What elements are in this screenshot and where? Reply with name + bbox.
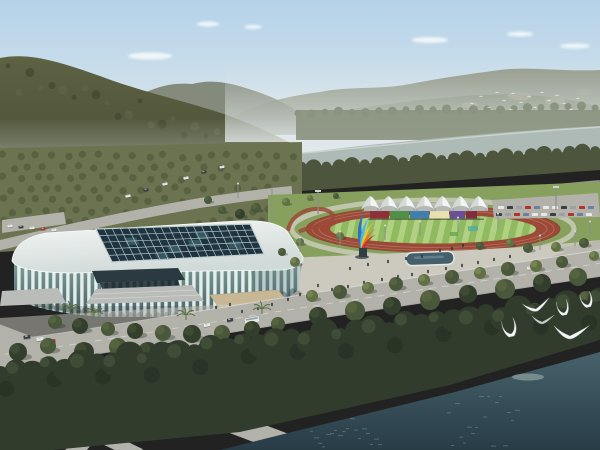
orchard-tree: [11, 165, 18, 172]
bank-tree: [498, 148, 514, 164]
orchard-tree: [105, 185, 112, 192]
bank-tree: [306, 159, 322, 175]
canopy-highlight: [137, 353, 147, 363]
bank-tree: [360, 159, 370, 169]
tree-highlight: [524, 244, 530, 250]
distant-tree: [376, 107, 383, 114]
tree-highlight: [334, 286, 342, 294]
orchard-tree: [129, 152, 136, 159]
bank-tree: [371, 157, 384, 170]
person: [387, 260, 389, 263]
tree-highlight: [557, 257, 564, 264]
cloud: [560, 44, 590, 49]
orchard-tree: [49, 196, 56, 203]
tree-highlight: [272, 318, 280, 326]
person: [299, 293, 301, 296]
tree-highlight: [390, 278, 398, 286]
orchard-tree: [122, 165, 129, 172]
orchard-tree: [80, 195, 87, 202]
parked-car: [586, 213, 592, 216]
tree-highlight: [346, 302, 357, 313]
cloud: [128, 53, 172, 60]
light-pole-head: [339, 231, 341, 233]
parked-car: [543, 206, 549, 209]
canopy-highlight: [264, 332, 278, 346]
orchard-tree: [171, 183, 178, 190]
distant-tree: [295, 110, 302, 117]
orchard-tree: [113, 152, 120, 159]
bank-tree: [536, 146, 552, 162]
orchard-tree: [91, 187, 98, 194]
forest-texture: [92, 90, 101, 99]
orchard-tree: [47, 174, 54, 181]
forest-texture: [82, 84, 89, 91]
orchard-tree: [151, 163, 158, 170]
tree-highlight: [102, 323, 110, 331]
orchard-tree: [247, 164, 254, 171]
bank-tree: [333, 159, 346, 172]
tree-highlight: [421, 291, 432, 302]
orchard-tree: [54, 185, 61, 192]
floodlight-head: [553, 186, 559, 188]
light-pole-head: [299, 237, 301, 239]
bank-tree: [552, 148, 562, 158]
orchard-tree: [120, 187, 127, 194]
parked-car: [525, 206, 531, 209]
parked-car: [577, 213, 583, 216]
parked-car: [579, 206, 585, 209]
orchard-tree: [96, 195, 103, 202]
parked-car: [505, 213, 511, 216]
person: [462, 244, 464, 247]
person: [257, 307, 259, 310]
orchard-tree: [67, 175, 74, 182]
canopy-highlight: [201, 337, 213, 349]
orchard-tree: [209, 173, 216, 180]
orchard-tree: [31, 151, 38, 158]
tree-highlight: [460, 286, 470, 296]
orchard-tree: [144, 198, 151, 205]
orchard-tree: [167, 161, 174, 168]
orchard-tree: [137, 187, 144, 194]
person: [493, 258, 495, 261]
bank-tree: [421, 153, 437, 169]
distant-tree: [592, 104, 599, 111]
color-panel: [466, 211, 477, 219]
tree-highlight: [184, 326, 194, 336]
bank-tree: [525, 148, 538, 161]
orchard-tree: [273, 152, 280, 159]
color-panel: [370, 211, 389, 219]
light-pole-head: [497, 213, 499, 215]
tree-highlight: [252, 204, 258, 210]
orchard-tree: [72, 206, 79, 213]
distant-tree: [349, 109, 356, 116]
person: [405, 257, 407, 260]
orchard-tree: [27, 185, 34, 192]
tree-highlight: [580, 239, 586, 245]
orchard-tree: [233, 163, 240, 170]
orchard-tree: [32, 195, 39, 202]
architectural-rendering: [0, 0, 600, 450]
orchard-tree: [184, 187, 191, 194]
bank-tree: [513, 151, 523, 161]
orchard-tree: [290, 175, 297, 182]
tree-highlight: [506, 239, 510, 243]
distant-tree: [511, 105, 518, 112]
canopy-tree-dark: [192, 359, 208, 375]
grandstand-panels: [370, 211, 477, 219]
person: [427, 270, 429, 273]
tree-highlight: [41, 339, 50, 348]
orchard-tree: [111, 174, 118, 181]
orchard-tree: [103, 207, 110, 214]
bank-tree: [437, 155, 447, 165]
person: [461, 264, 463, 267]
orchard-tree: [9, 209, 16, 216]
distant-tree: [538, 104, 545, 111]
tree-highlight: [475, 268, 482, 275]
car-body: [7, 225, 12, 228]
orchard-tree: [241, 174, 248, 181]
bank-tree: [475, 153, 485, 163]
parked-car: [516, 206, 522, 209]
parked-car: [568, 213, 574, 216]
bank-tree: [398, 157, 408, 167]
canopy-highlight: [492, 310, 504, 322]
tree-highlight: [291, 258, 297, 264]
parked-car: [559, 213, 565, 216]
bank-tree: [344, 157, 360, 173]
orchard-tree: [59, 163, 66, 170]
forest-texture: [49, 82, 56, 89]
parked-car: [507, 206, 513, 209]
distant-tree: [415, 105, 424, 114]
distant-tree: [334, 107, 343, 116]
light-pole-head: [574, 231, 576, 233]
canopy-highlight: [395, 313, 407, 325]
canopy-tree-dark: [581, 315, 597, 331]
light-pole-head: [589, 221, 591, 223]
sculpture-pedestal: [359, 248, 367, 257]
canopy-highlight: [331, 329, 341, 339]
orchard-tree: [7, 187, 14, 194]
orchard-tree: [208, 151, 215, 158]
person: [229, 303, 231, 306]
parked-car: [514, 213, 520, 216]
tree-highlight: [570, 269, 580, 279]
light-pole-head: [384, 225, 386, 227]
orchard-tree: [255, 151, 262, 158]
parked-car: [588, 206, 594, 209]
orchard-tree: [147, 154, 154, 161]
orchard-tree: [90, 165, 97, 172]
distant-tree: [457, 107, 464, 114]
floodlight-head: [315, 190, 321, 192]
light-pole-head: [457, 217, 459, 219]
car-body: [29, 227, 34, 230]
tree-highlight: [446, 271, 454, 279]
canopy-highlight: [40, 357, 50, 367]
tree-highlight: [476, 242, 480, 246]
car-body: [40, 228, 45, 231]
orchard-tree: [200, 163, 207, 170]
tree-highlight: [282, 198, 286, 202]
tree-highlight: [215, 326, 224, 335]
orchard-tree: [131, 196, 138, 203]
orchard-tree: [183, 165, 190, 172]
forest-texture: [26, 68, 35, 77]
orchard-tree: [0, 195, 7, 202]
orchard-tree: [18, 175, 25, 182]
tree-highlight: [236, 210, 242, 216]
parked-car: [534, 206, 540, 209]
color-panel: [390, 211, 409, 219]
orchard-tree: [99, 173, 106, 180]
water-reflection: [512, 374, 544, 381]
bank-tree: [563, 146, 576, 159]
orchard-tree: [290, 153, 297, 160]
person: [215, 306, 217, 309]
orchard-tree: [147, 176, 154, 183]
canopy-tree-dark: [387, 337, 403, 353]
parked-car: [523, 213, 529, 216]
bank-tree: [486, 151, 499, 164]
distant-tree: [469, 105, 478, 114]
bank-tree: [448, 153, 461, 166]
distant-tree: [550, 102, 559, 111]
orchard-tree: [74, 184, 81, 191]
tree-highlight: [218, 206, 222, 210]
car-body: [51, 229, 56, 232]
tree-highlight: [333, 193, 336, 196]
orchard-tree: [79, 151, 86, 158]
tree-highlight: [49, 316, 57, 324]
canopy-highlight: [298, 333, 310, 345]
person: [445, 267, 447, 270]
orchard-tree: [114, 196, 121, 203]
tree-highlight: [552, 243, 558, 249]
orchard-tree: [79, 173, 86, 180]
bank-tree: [321, 162, 331, 172]
parked-car: [552, 206, 558, 209]
light-pole-head: [539, 235, 541, 237]
orchard-tree: [24, 163, 31, 170]
person: [271, 303, 273, 306]
light-pole-head: [419, 221, 421, 223]
person: [317, 284, 319, 287]
forest-texture: [138, 98, 143, 103]
orchard-tree: [39, 163, 46, 170]
person: [241, 310, 243, 313]
tree-highlight: [580, 292, 588, 300]
person: [421, 255, 423, 258]
tree-highlight: [10, 344, 20, 354]
cloud: [507, 32, 533, 37]
tree-highlight: [245, 322, 254, 331]
orchard-tree: [75, 162, 82, 169]
forest-texture: [39, 85, 44, 90]
orchard-tree: [159, 151, 166, 158]
tree-highlight: [590, 252, 596, 258]
orchard-tree: [18, 197, 25, 204]
parked-car: [532, 213, 538, 216]
person: [381, 278, 383, 281]
parked-car: [498, 206, 504, 209]
orchard-tree: [195, 176, 202, 183]
color-panel: [410, 211, 429, 219]
tree-highlight: [363, 283, 370, 290]
distant-tree: [307, 109, 316, 118]
orchard-tree: [200, 185, 207, 192]
distant-tree: [430, 106, 437, 113]
canopy-highlight: [167, 344, 181, 358]
person: [287, 298, 289, 301]
forest-texture: [105, 100, 110, 105]
canopy-tree-dark: [144, 367, 160, 383]
orchard-tree: [218, 187, 225, 194]
distant-tree: [361, 108, 370, 117]
tree-highlight: [419, 275, 426, 282]
field-marking: [468, 226, 478, 232]
distant-tree: [484, 105, 491, 112]
bank-tree: [590, 146, 600, 156]
orchard-tree: [263, 161, 270, 168]
distant-tree: [442, 104, 451, 113]
distant-tree: [577, 102, 586, 111]
forest-texture: [16, 89, 23, 96]
distant-tree: [403, 106, 410, 113]
person: [411, 273, 413, 276]
person: [349, 267, 351, 270]
light-pole-head: [237, 183, 239, 185]
orchard-tree: [35, 173, 42, 180]
bank-tree: [574, 144, 590, 160]
forest-texture: [59, 86, 68, 95]
distant-tree: [496, 106, 505, 115]
orchard-tree: [161, 173, 168, 180]
parked-car: [561, 206, 567, 209]
orchard-tree: [25, 207, 32, 214]
tree-highlight: [307, 195, 310, 198]
parked-car: [496, 213, 502, 216]
orchard-tree: [95, 151, 102, 158]
orchard-tree: [138, 165, 145, 172]
orchard-tree: [48, 152, 55, 159]
orchard-tree: [88, 209, 95, 216]
tree-highlight: [307, 291, 314, 298]
distant-tree: [388, 107, 397, 116]
tree-highlight: [384, 298, 394, 308]
orchard-tree: [195, 154, 202, 161]
canopy-highlight: [6, 362, 18, 374]
orchard-tree: [224, 173, 231, 180]
orchard-tree: [42, 207, 49, 214]
car-body: [18, 226, 23, 229]
bank-tree: [410, 155, 423, 168]
orchard-tree: [18, 153, 25, 160]
orchard-tree: [272, 174, 279, 181]
parked-car: [550, 213, 556, 216]
person: [347, 285, 349, 288]
person: [477, 261, 479, 264]
cloud: [197, 22, 219, 27]
person: [331, 288, 333, 291]
tree-highlight: [204, 196, 208, 200]
tree-highlight: [73, 319, 82, 328]
bank-tree: [382, 155, 398, 171]
parked-car: [541, 213, 547, 216]
person: [509, 255, 511, 258]
orchard-tree: [129, 174, 136, 181]
fence-line: [368, 219, 484, 221]
tree-highlight: [156, 326, 165, 335]
forest-texture: [6, 63, 11, 68]
orchard-tree: [106, 163, 113, 170]
tree-highlight: [502, 263, 510, 271]
reflecting-pool: [406, 251, 454, 266]
left-steps: [0, 288, 66, 306]
orchard-tree: [155, 185, 162, 192]
orchard-tree: [223, 151, 230, 158]
canopy-tree-dark: [338, 343, 354, 359]
person: [451, 247, 453, 250]
person: [367, 263, 369, 266]
cloud: [244, 25, 262, 29]
canopy-highlight: [459, 310, 473, 324]
cloud: [412, 37, 448, 43]
canopy-highlight: [70, 354, 84, 368]
orchard-tree: [258, 173, 265, 180]
orchard-tree: [42, 185, 49, 192]
orchard-tree: [280, 163, 287, 170]
parked-car: [570, 206, 576, 209]
person: [439, 249, 441, 252]
tree-highlight: [531, 261, 538, 268]
tree-highlight: [128, 324, 137, 333]
scene-canvas: [0, 0, 600, 450]
canopy-highlight: [234, 334, 244, 344]
forest-texture: [72, 95, 77, 100]
tree-highlight: [278, 248, 282, 252]
bank-tree: [459, 150, 475, 166]
tree-highlight: [496, 280, 507, 291]
distant-tree: [523, 103, 532, 112]
field-marking: [450, 232, 458, 236]
canopy-highlight: [362, 319, 376, 333]
tree-highlight: [534, 275, 544, 285]
orchard-tree: [241, 152, 248, 159]
canopy-highlight: [428, 312, 438, 322]
distant-tree: [322, 109, 329, 116]
color-panel: [430, 211, 449, 219]
tree-highlight: [310, 308, 320, 318]
orchard-tree: [65, 153, 72, 160]
canopy-highlight: [103, 355, 115, 367]
orchard-tree: [179, 154, 186, 161]
orchard-tree: [65, 197, 72, 204]
orchard-tree: [161, 195, 168, 202]
